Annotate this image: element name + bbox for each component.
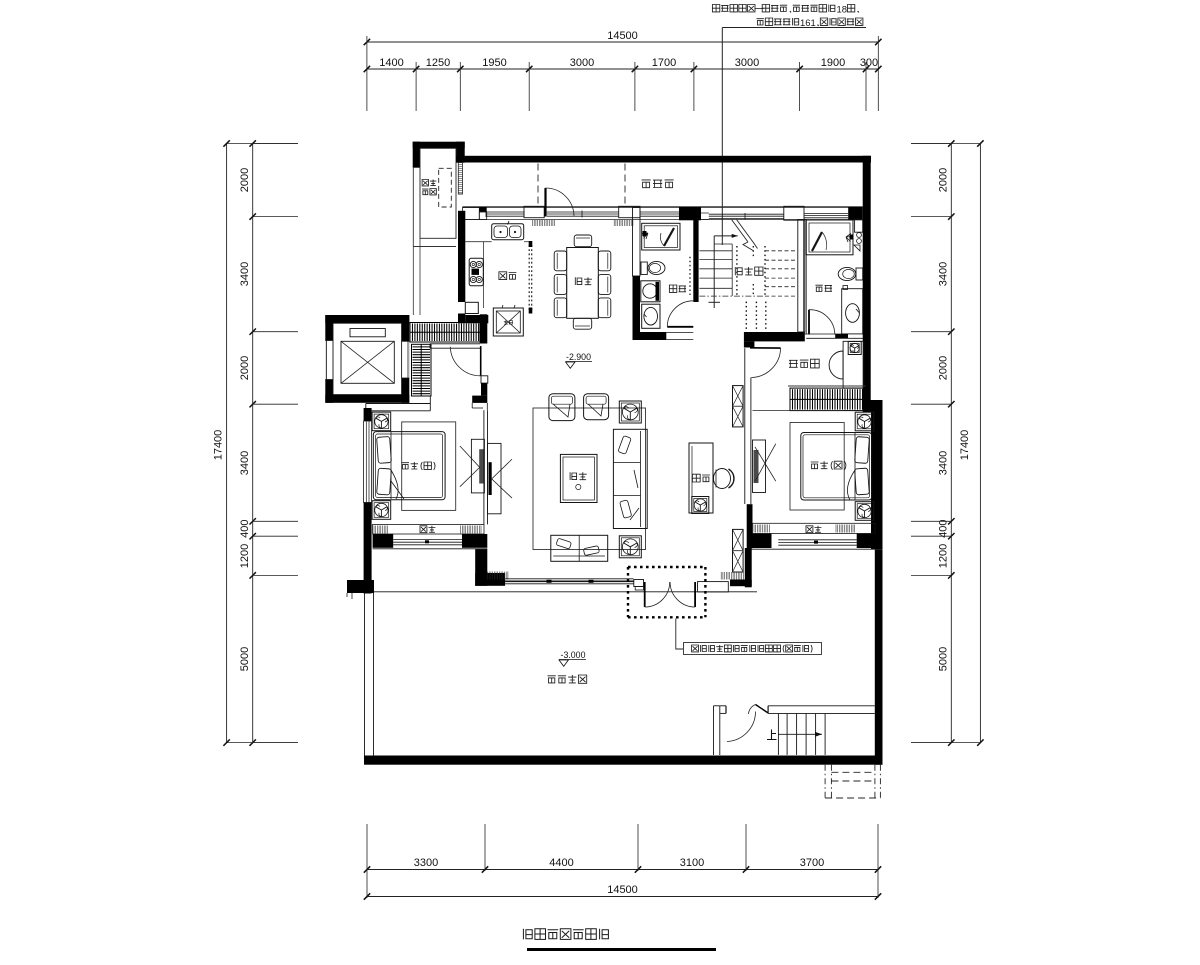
svg-text:400: 400: [239, 520, 251, 538]
svg-text:3400: 3400: [938, 451, 950, 475]
svg-text:3000: 3000: [735, 57, 759, 69]
svg-text:3400: 3400: [239, 451, 251, 475]
svg-text:18: 18: [836, 4, 846, 15]
svg-text:1200: 1200: [239, 544, 251, 568]
svg-text:-2.900: -2.900: [566, 352, 591, 362]
svg-text:2000: 2000: [239, 356, 251, 380]
svg-text:2000: 2000: [938, 356, 950, 380]
svg-text:400: 400: [938, 520, 950, 538]
svg-text:2000: 2000: [938, 168, 950, 192]
svg-text:1700: 1700: [652, 57, 676, 69]
svg-text:161: 161: [800, 17, 816, 28]
svg-text:1950: 1950: [482, 57, 506, 69]
svg-text:1200: 1200: [938, 544, 950, 568]
svg-text:5000: 5000: [938, 647, 950, 671]
svg-text:3300: 3300: [414, 857, 438, 869]
svg-text:17400: 17400: [213, 430, 225, 461]
svg-text:1250: 1250: [426, 57, 450, 69]
svg-text:3700: 3700: [800, 857, 824, 869]
svg-text:14500: 14500: [607, 30, 638, 42]
svg-text:-3.000: -3.000: [561, 650, 586, 660]
svg-text:1900: 1900: [821, 57, 845, 69]
svg-text:3100: 3100: [680, 857, 704, 869]
svg-text:一: 一: [754, 4, 764, 15]
svg-text:1400: 1400: [379, 57, 403, 69]
svg-text:14500: 14500: [607, 884, 638, 896]
svg-text:2000: 2000: [239, 168, 251, 192]
svg-text:4400: 4400: [549, 857, 573, 869]
svg-text:5000: 5000: [239, 647, 251, 671]
svg-text:17400: 17400: [959, 430, 971, 461]
svg-text:3400: 3400: [938, 262, 950, 286]
svg-text:300: 300: [860, 57, 878, 69]
svg-text:3000: 3000: [570, 57, 594, 69]
svg-text:3400: 3400: [239, 262, 251, 286]
